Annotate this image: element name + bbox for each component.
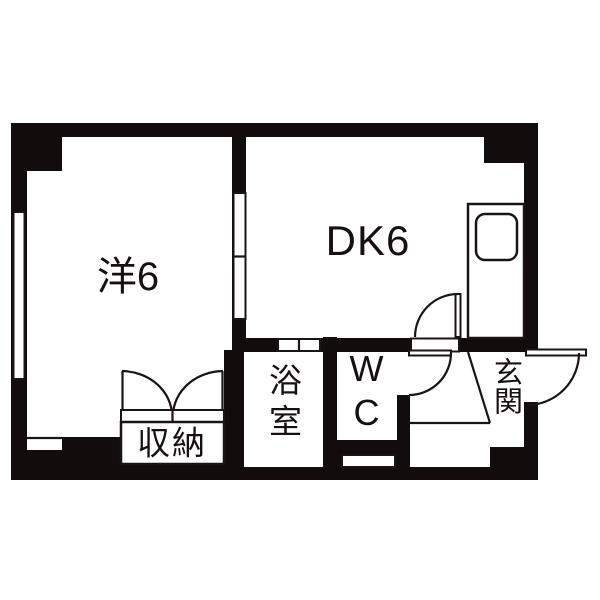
wall-under-bath xyxy=(244,467,323,480)
kitchen-sink xyxy=(476,214,517,260)
room-label-bathroom: 浴室 xyxy=(267,363,300,445)
room-label-storage: 収納 xyxy=(137,427,207,460)
room-label-western: 洋6 xyxy=(97,257,159,297)
floorplan-drawing xyxy=(0,0,600,600)
entrance-step-diagonal xyxy=(468,352,490,423)
room-label-dining-kitchen: DK6 xyxy=(326,220,411,262)
wall-bath-left xyxy=(224,350,244,480)
toilet-door-leaf xyxy=(409,351,451,356)
front-door-leaf xyxy=(526,350,586,356)
room-label-entrance: 玄関 xyxy=(491,357,520,415)
toilet-door-swing-arc xyxy=(409,353,451,395)
wall-entrance-step xyxy=(490,447,538,480)
room-label-toilet: WC xyxy=(348,348,384,436)
left-window xyxy=(14,212,25,379)
wall-bottom-left xyxy=(11,450,66,480)
wall-bath-right xyxy=(323,337,337,480)
toilet-window xyxy=(342,455,395,467)
wall-top xyxy=(11,123,538,137)
dk-door-leaf xyxy=(456,294,461,337)
storage-door-left-arc xyxy=(122,371,172,415)
wall-bottom-step xyxy=(62,437,126,480)
storage-door-right-arc xyxy=(173,371,223,415)
wall-toilet-right xyxy=(397,395,410,480)
floorplan: 洋6 DK6 浴室 WC 玄関 収納 xyxy=(0,0,600,600)
wall-under-hall xyxy=(410,467,490,480)
front-door-opening xyxy=(523,352,539,402)
wall-under-storage xyxy=(126,463,224,480)
dk-door-swing-arc xyxy=(415,294,458,337)
wall-right-upper xyxy=(524,123,538,352)
